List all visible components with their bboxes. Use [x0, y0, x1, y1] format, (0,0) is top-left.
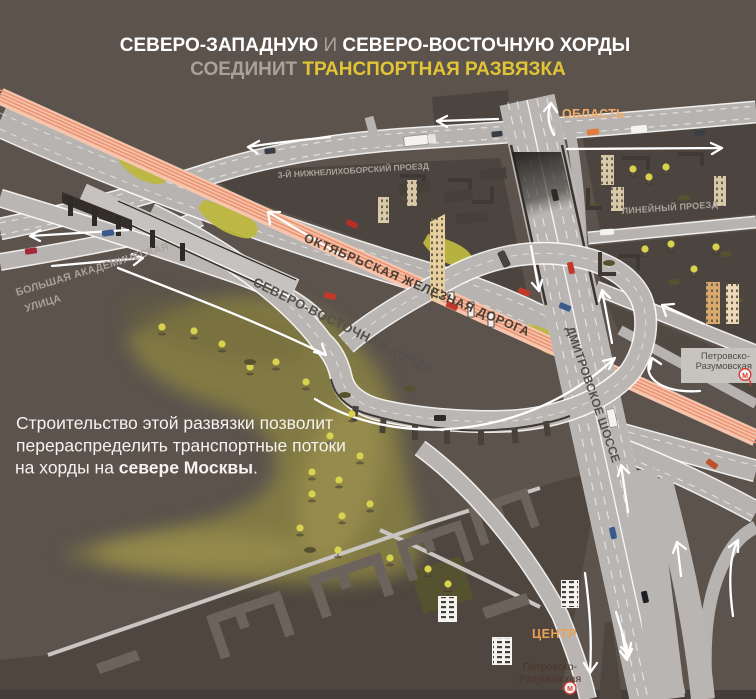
svg-text:Петровско-: Петровско- [523, 661, 578, 673]
svg-text:М: М [742, 373, 748, 380]
svg-text:ОБЛАСТЬ: ОБЛАСТЬ [562, 107, 625, 121]
svg-text:СОЕДИНИТ ТРАНСПОРТНАЯ РАЗВЯЗКА: СОЕДИНИТ ТРАНСПОРТНАЯ РАЗВЯЗКА [190, 59, 566, 80]
svg-text:на хорды на севере Москвы.: на хорды на севере Москвы. [15, 458, 258, 478]
svg-text:ЦЕНТР: ЦЕНТР [532, 627, 577, 641]
svg-text:СЕВЕРО-ЗАПАДНУЮ И СЕВЕРО-ВОСТО: СЕВЕРО-ЗАПАДНУЮ И СЕВЕРО-ВОСТОЧНУЮ ХОРДЫ [120, 35, 631, 56]
svg-text:М: М [567, 686, 573, 693]
svg-text:перераспределить транспортные: перераспределить транспортные потоки [16, 436, 346, 456]
svg-text:Строительство этой развязки по: Строительство этой развязки позволит [16, 413, 333, 433]
